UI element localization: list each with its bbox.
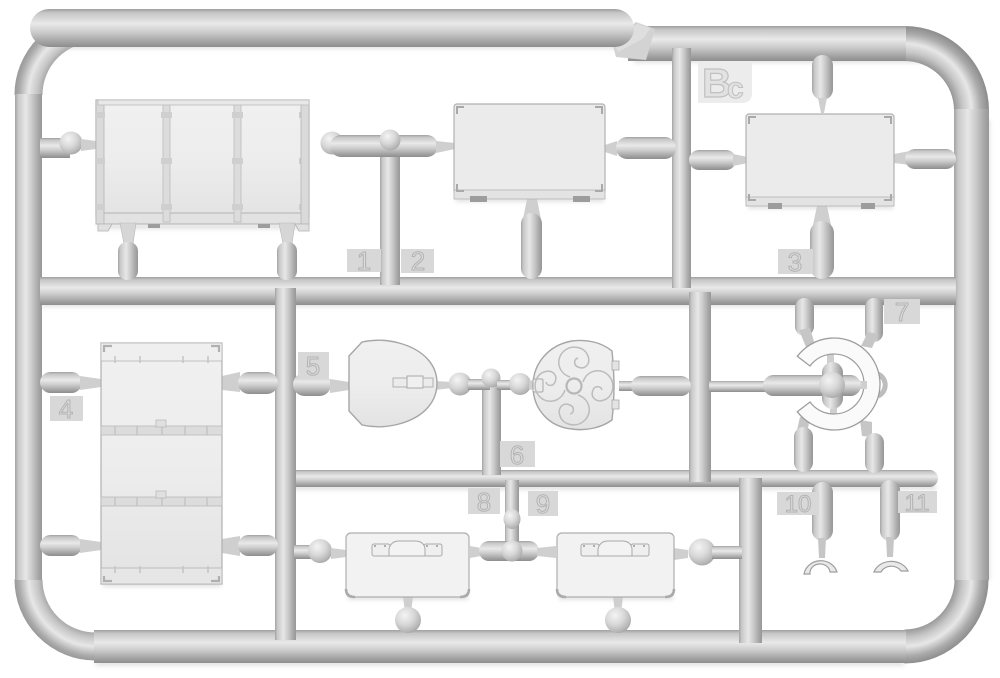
- svg-text:6: 6: [510, 440, 524, 470]
- svg-text:10: 10: [785, 491, 812, 518]
- svg-text:11: 11: [905, 490, 930, 517]
- svg-text:4: 4: [59, 394, 73, 424]
- svg-text:c: c: [727, 72, 744, 105]
- svg-text:2: 2: [411, 246, 425, 276]
- svg-text:1: 1: [357, 246, 371, 276]
- svg-text:3: 3: [788, 247, 802, 277]
- svg-text:9: 9: [536, 489, 550, 519]
- svg-text:8: 8: [477, 487, 491, 517]
- svg-text:7: 7: [895, 297, 909, 327]
- svg-text:5: 5: [306, 351, 320, 381]
